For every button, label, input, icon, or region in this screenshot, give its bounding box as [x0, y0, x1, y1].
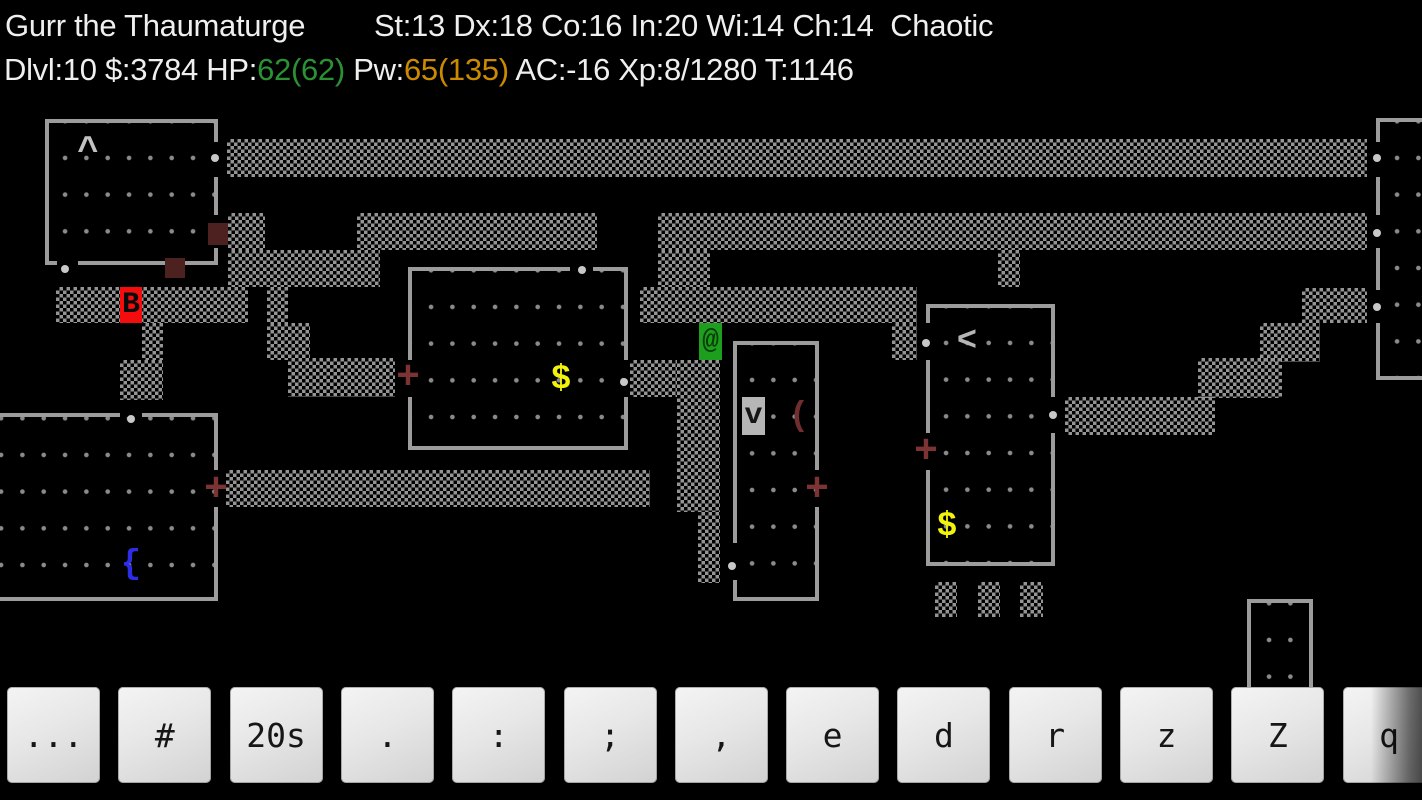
nethack-screen: Gurr the Thaumaturge St:13 Dx:18 Co:16 I…	[0, 0, 1422, 800]
corridor	[228, 213, 265, 250]
corridor	[267, 287, 288, 323]
corridor	[1065, 397, 1215, 435]
doorway-dot	[728, 562, 736, 570]
wall-segment	[214, 507, 218, 601]
glyph-open-door-2[interactable]: +	[805, 471, 829, 509]
key-label: #	[155, 716, 175, 755]
corridor	[677, 360, 720, 512]
doorway-dot	[127, 415, 135, 423]
key-label: .	[377, 716, 397, 755]
wall-segment	[1309, 599, 1313, 698]
key-label: e	[823, 716, 843, 755]
status-segment: 65(135)	[404, 52, 509, 87]
key-:[interactable]: :	[452, 687, 545, 783]
corridor	[142, 323, 163, 360]
key-;[interactable]: ;	[564, 687, 657, 783]
corridor	[935, 582, 957, 617]
corridor	[1020, 582, 1043, 617]
doorway-dot	[1049, 411, 1057, 419]
wall-segment	[624, 397, 628, 450]
room-floor	[737, 345, 815, 597]
wall-segment	[1376, 376, 1422, 380]
corridor	[1260, 323, 1320, 362]
wall-segment	[733, 597, 819, 601]
wall-segment	[78, 261, 165, 265]
key-label: z	[1157, 716, 1177, 755]
corridor	[1198, 358, 1282, 398]
corridor	[357, 213, 597, 250]
key-d[interactable]: d	[897, 687, 990, 783]
room-floor	[1380, 122, 1422, 376]
glyph-monster-bat[interactable]: B	[120, 287, 142, 323]
key-.[interactable]: .	[341, 687, 434, 783]
doorway-dot	[1373, 229, 1381, 237]
closed-door[interactable]	[208, 223, 228, 245]
key-label: ...	[24, 716, 84, 755]
room-floor	[1251, 603, 1309, 699]
corridor	[998, 250, 1020, 287]
corridor	[640, 287, 917, 323]
wall-segment	[926, 562, 1055, 566]
glyph-open-door-1[interactable]: +	[396, 359, 420, 397]
corridor	[698, 512, 720, 583]
wall-segment	[214, 177, 218, 215]
glyph-creature-v[interactable]: v	[742, 397, 765, 435]
key-label: ,	[711, 716, 731, 755]
key-e[interactable]: e	[786, 687, 879, 783]
key-label: d	[934, 716, 954, 755]
glyph-player[interactable]: @	[699, 323, 722, 360]
wall-segment	[408, 446, 628, 450]
doorway-dot	[211, 154, 219, 162]
key-label: r	[1045, 716, 1065, 755]
wall-segment	[214, 413, 218, 470]
key-label: :	[489, 716, 509, 755]
corridor	[1302, 288, 1367, 323]
status-segment: Pw:	[345, 52, 404, 87]
corridor	[226, 470, 650, 507]
corridor	[658, 250, 710, 287]
key-r[interactable]: r	[1009, 687, 1102, 783]
doorway-dot	[578, 266, 586, 274]
glyph-gold-pile-1: $	[550, 361, 572, 398]
screen-edge-fade	[1343, 687, 1422, 783]
key-20s[interactable]: 20s	[230, 687, 323, 783]
key-label: 20s	[246, 716, 306, 755]
key-Z[interactable]: Z	[1231, 687, 1324, 783]
glyph-open-door-3[interactable]: +	[914, 433, 938, 471]
wall-segment	[184, 261, 218, 265]
doorway-dot	[620, 378, 628, 386]
doorway-dot	[1373, 303, 1381, 311]
corridor	[978, 582, 1000, 617]
doorway-dot	[922, 339, 930, 347]
wall-segment	[1051, 304, 1055, 397]
corridor	[892, 323, 917, 360]
wall-segment	[0, 597, 218, 601]
wall-segment	[45, 261, 57, 265]
status-line2: Dlvl:10 $:3784 HP:62(62) Pw:65(135) AC:-…	[4, 52, 854, 88]
corridor	[288, 358, 395, 397]
key-#[interactable]: #	[118, 687, 211, 783]
status-bar: Gurr the Thaumaturge St:13 Dx:18 Co:16 I…	[0, 0, 1422, 96]
wall-segment	[815, 341, 819, 470]
key-...[interactable]: ...	[7, 687, 100, 783]
glyph-trap: ^	[77, 134, 99, 168]
room-floor	[412, 271, 624, 446]
corridor	[228, 250, 380, 287]
glyph-stairs-up: <	[956, 323, 978, 360]
dungeon-map[interactable]: ^<$${(++++B@v	[0, 96, 1422, 688]
status-segment: 62(62)	[257, 52, 345, 87]
key-,[interactable]: ,	[675, 687, 768, 783]
key-q[interactable]: q	[1343, 687, 1422, 783]
wall-segment	[624, 267, 628, 360]
room-floor	[49, 123, 214, 261]
corridor	[267, 323, 310, 360]
status-segment: Dlvl:10 $:3784 HP:	[4, 52, 257, 87]
room-floor	[0, 417, 214, 597]
key-label: ;	[600, 716, 620, 755]
wall-segment	[1051, 433, 1055, 566]
character-attributes: St:13 Dx:18 Co:16 In:20 Wi:14 Ch:14 Chao…	[374, 8, 993, 44]
corridor	[227, 139, 1367, 177]
doorway-dot	[61, 265, 69, 273]
wall-segment	[815, 507, 819, 601]
glyph-gold-pile-2: $	[936, 508, 958, 545]
corridor	[56, 287, 248, 323]
wall-segment	[214, 119, 218, 142]
key-label: Z	[1268, 716, 1288, 755]
character-title: Gurr the Thaumaturge	[5, 8, 305, 44]
corridor	[658, 213, 1367, 250]
key-z[interactable]: z	[1120, 687, 1213, 783]
glyph-open-door-4[interactable]: +	[204, 471, 228, 509]
corridor	[120, 360, 163, 400]
doorway-dot	[1373, 154, 1381, 162]
corridor	[630, 360, 677, 397]
glyph-weapon-item: (	[788, 398, 810, 435]
status-segment: AC:-16 Xp:8/1280 T:1146	[509, 52, 854, 87]
closed-door[interactable]	[165, 258, 185, 278]
glyph-fountain: {	[120, 546, 142, 584]
